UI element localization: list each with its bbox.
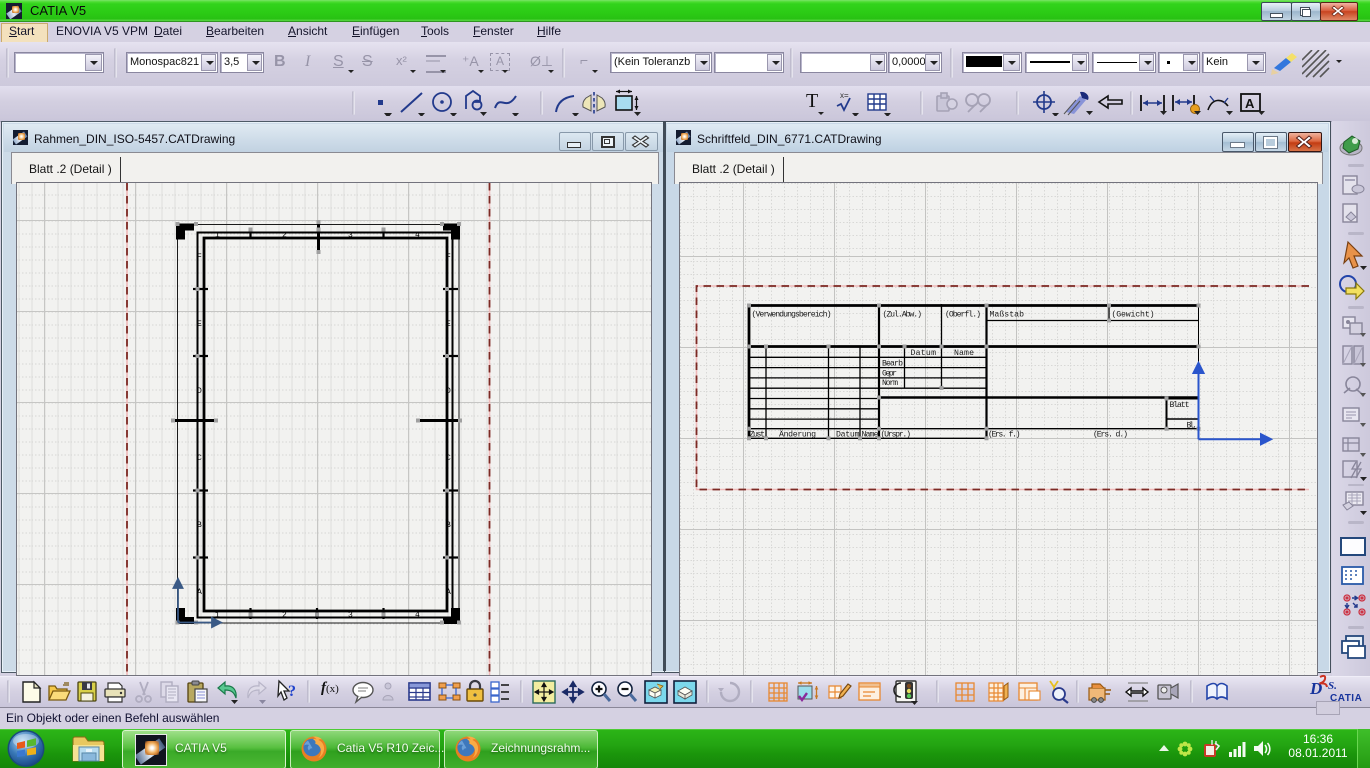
svg-text:Datum: Datum [911,349,937,358]
svg-text:Maßstab: Maßstab [990,310,1025,320]
svg-text:C: C [197,454,202,463]
svg-text:4: 4 [415,231,420,240]
svg-text:Änderung: Änderung [779,430,816,440]
svg-text:(Verwendungsbereich): (Verwendungsbereich) [752,310,832,320]
svg-text:Name: Name [954,349,974,358]
svg-text:2: 2 [282,611,287,620]
svg-text:E: E [446,320,451,329]
svg-text:A: A [446,588,451,597]
svg-text:Bl.: Bl. [1187,421,1198,431]
svg-text:E: E [197,320,202,329]
svg-text:F: F [197,253,202,262]
svg-text:Datum: Datum [836,431,860,440]
svg-text:(Ers. f.): (Ers. f.) [988,430,1021,440]
svg-text:Norm: Norm [882,379,898,388]
svg-text:D: D [197,387,202,396]
svg-text:C: C [446,454,451,463]
svg-text:D: D [446,387,451,396]
svg-text:x=: x= [840,91,849,100]
svg-text:Blatt: Blatt [1170,400,1190,410]
svg-text:B: B [197,521,202,530]
svg-text:1: 1 [215,611,220,620]
svg-text:(Oberfl.): (Oberfl.) [945,310,981,320]
svg-text:3: 3 [348,611,353,620]
svg-text:B: B [446,521,451,530]
svg-text:1: 1 [215,231,220,240]
svg-text:(Urspr.): (Urspr.) [881,430,912,440]
svg-text:2: 2 [282,231,287,240]
svg-text:A: A [197,588,202,597]
svg-text:S.: S. [1328,680,1337,692]
svg-text:F: F [446,253,451,262]
svg-text:Zust: Zust [750,431,766,440]
svg-text:(Zul.Abw.): (Zul.Abw.) [883,310,923,320]
svg-text:Bearb: Bearb [882,359,903,369]
svg-text:3: 3 [348,231,353,240]
svg-text:A: A [1245,96,1255,111]
svg-text:(Gewicht): (Gewicht) [1112,310,1155,320]
svg-text:Gepr: Gepr [882,370,897,379]
svg-text:D: D [1309,679,1322,698]
svg-text:(Ers. d.): (Ers. d.) [1093,430,1128,440]
svg-text:4: 4 [415,611,420,620]
svg-text:?: ? [288,683,296,700]
svg-text:Name: Name [862,431,879,440]
